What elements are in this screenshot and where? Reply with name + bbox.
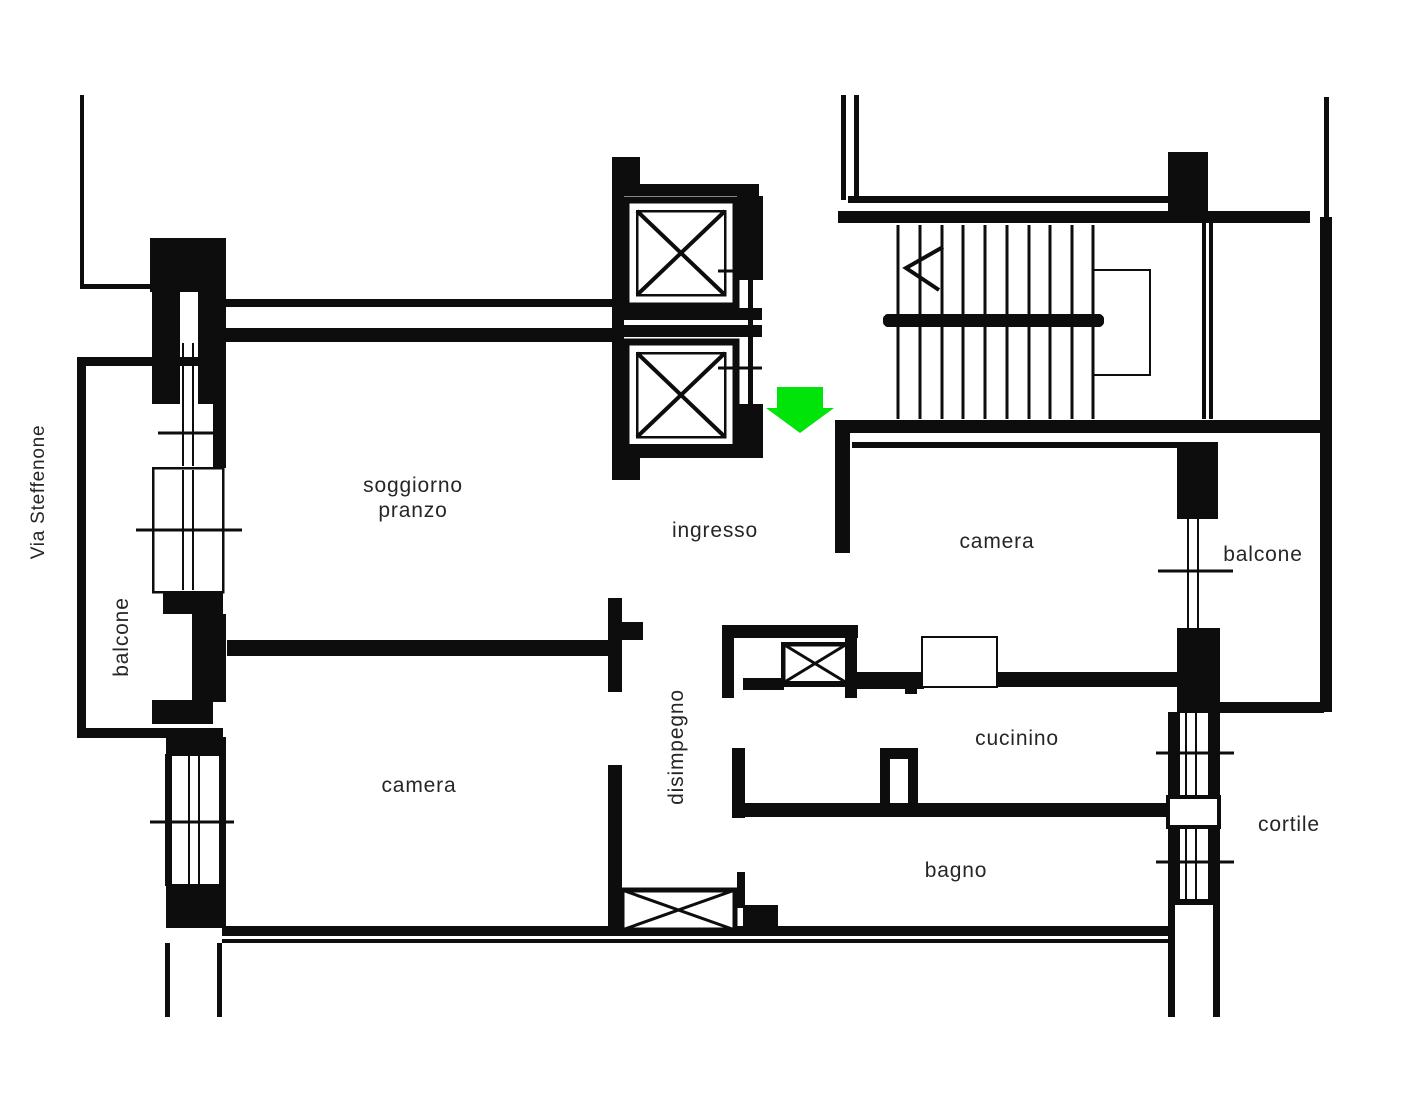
street-wall [80, 95, 152, 289]
label-cortile: cortile [1258, 813, 1320, 837]
floor-plan-drawing [0, 0, 1410, 1100]
stair-handrail [883, 314, 1104, 327]
label-camera-top: camera [959, 530, 1034, 554]
french-door-soggiorno [136, 468, 242, 592]
bottom-walls [222, 890, 1172, 943]
entrance-arrow-icon [766, 387, 834, 433]
elevator-shaft-1 [626, 200, 736, 306]
window-balcone-right [1158, 519, 1233, 628]
cortile-window-column [1156, 712, 1234, 1017]
label-ingresso: ingresso [672, 519, 758, 543]
camera-cucinino-opening [922, 637, 997, 687]
stairwell [838, 95, 1332, 712]
label-cucinino: cucinino [975, 727, 1059, 751]
floor-plan: Via Steffenone balcone soggiorno pranzo … [0, 0, 1410, 1100]
stair-direction-arrow-icon [906, 247, 943, 290]
soggiorno-top-wall [223, 299, 613, 342]
elevator-shaft-2 [626, 342, 736, 448]
label-soggiorno: soggiorno [363, 474, 463, 498]
label-balcone-right: balcone [1223, 543, 1302, 567]
interior-dividers [227, 598, 1169, 930]
street-label: Via Steffenone [28, 425, 50, 560]
label-disimpegno: disimpegno [665, 689, 689, 805]
elevator-enclosure-walls [612, 157, 763, 480]
label-balcone-left: balcone [110, 597, 134, 676]
top-left-wall-block [150, 238, 226, 404]
label-camera-bottom: camera [381, 774, 456, 798]
label-bagno: bagno [925, 859, 988, 883]
window-left-lower [150, 755, 234, 885]
label-pranzo: pranzo [378, 499, 447, 523]
